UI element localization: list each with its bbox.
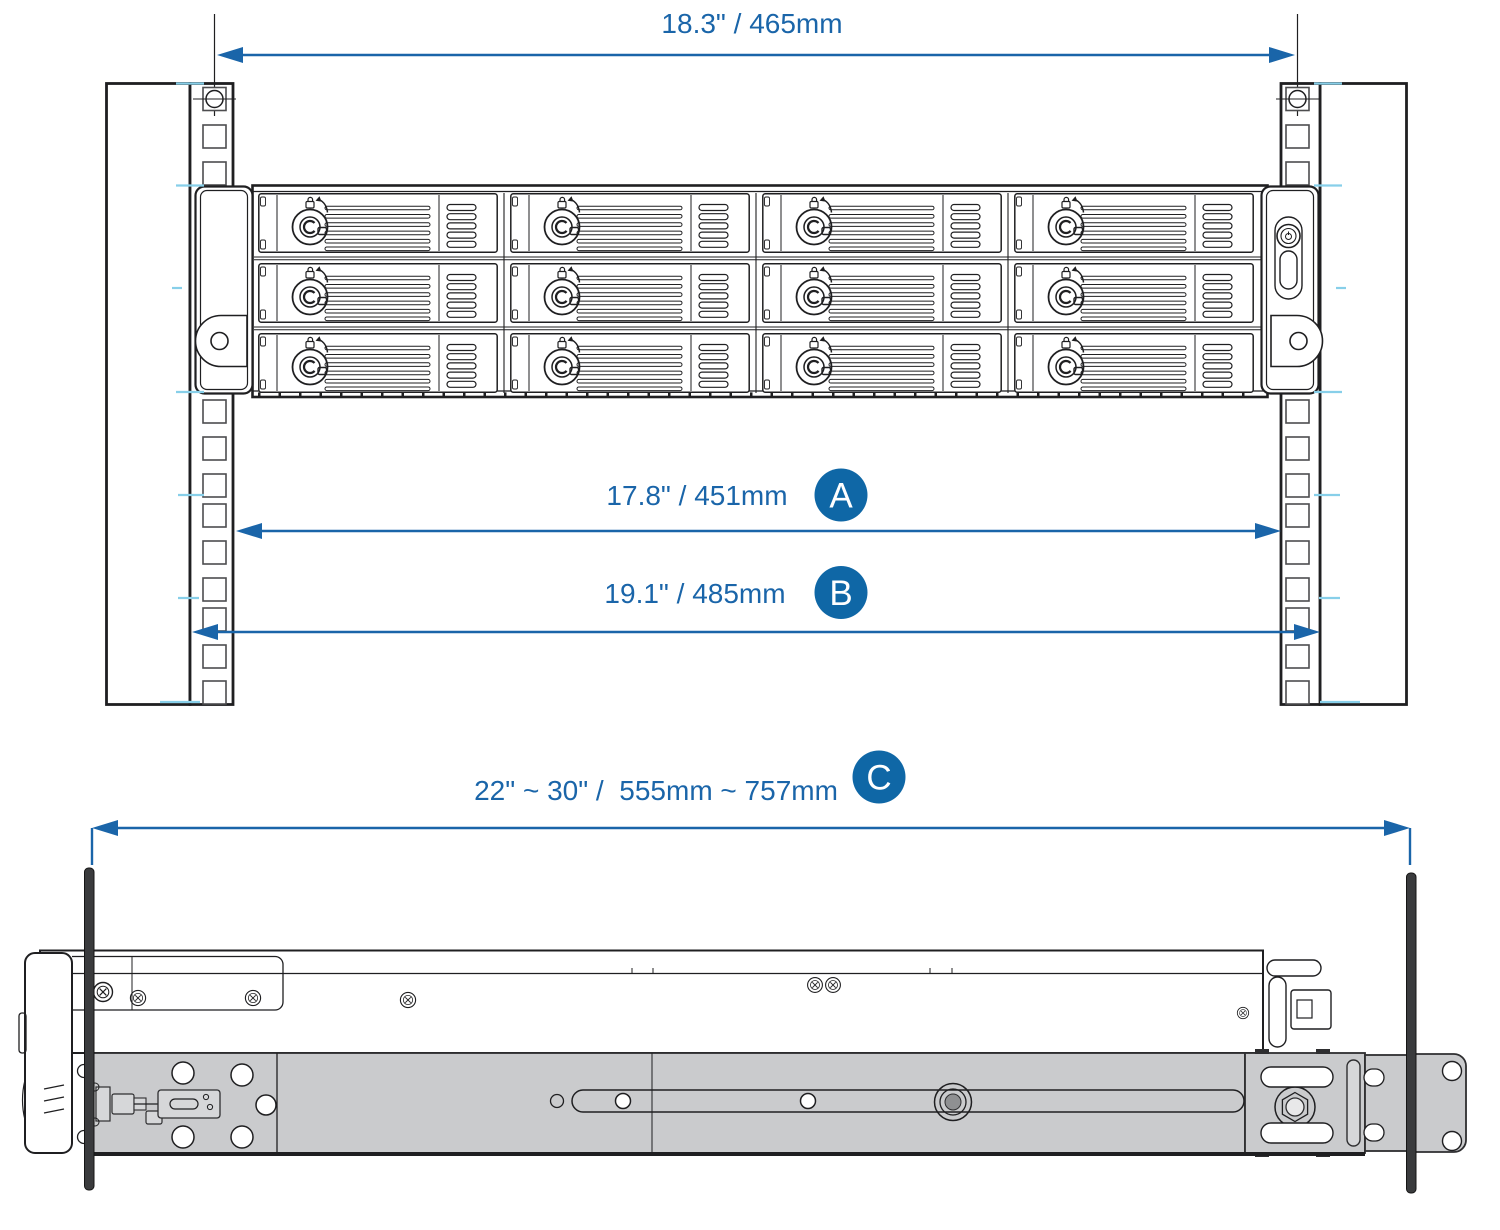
- nas-chassis-front: [196, 186, 1323, 398]
- rear-latch: [1267, 960, 1331, 1047]
- dimension-b: 19.1" / 485mm B: [192, 566, 1320, 640]
- badge-b-letter: B: [829, 574, 852, 613]
- dim-label-c: 22" ~ 30" / 555mm ~ 757mm: [474, 775, 838, 806]
- dim-label-b: 19.1" / 485mm: [604, 578, 785, 609]
- dimension-c: 22" ~ 30" / 555mm ~ 757mm C: [92, 751, 1410, 866]
- slide-rail: [78, 1049, 1467, 1157]
- diagram-canvas: 18.3" / 465mm 17.8" / 451mm A 19.1" / 48…: [0, 0, 1500, 1230]
- right-ear: [1262, 187, 1323, 394]
- dimension-hole-width: 18.3" / 465mm: [217, 8, 1295, 63]
- rack-front-view-figure: 18.3" / 465mm 17.8" / 451mm A 19.1" / 48…: [0, 0, 1500, 745]
- dim-label-a: 17.8" / 451mm: [606, 480, 787, 511]
- dim-label-hole-width: 18.3" / 465mm: [661, 8, 842, 39]
- rail-nut-front: [935, 1084, 972, 1121]
- badge-a-letter: A: [829, 477, 853, 516]
- rear-rack-post-bar: [1407, 873, 1417, 1193]
- chassis-front-cap: [19, 953, 72, 1153]
- front-rack-post-bar: [85, 868, 95, 1190]
- left-ear: [196, 187, 253, 394]
- badge-c-letter: C: [866, 759, 891, 798]
- rail-side-view-figure: 22" ~ 30" / 555mm ~ 757mm C: [0, 745, 1500, 1230]
- dimension-a: 17.8" / 451mm A: [236, 469, 1281, 540]
